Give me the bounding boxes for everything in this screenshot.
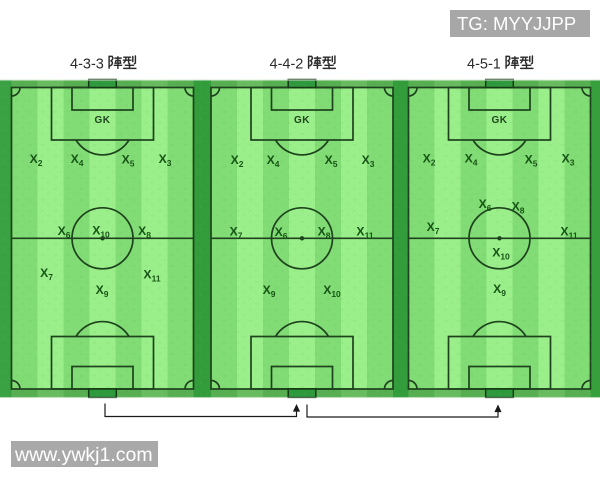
svg-text:4-4-2: 4-4-2 xyxy=(270,57,304,73)
svg-text:4-5-1: 4-5-1 xyxy=(467,57,501,73)
svg-text:TG: MYYJJPP: TG: MYYJJPP xyxy=(457,13,576,34)
svg-text:www.ywkj1.com: www.ywkj1.com xyxy=(14,444,153,466)
svg-text:4-3-3: 4-3-3 xyxy=(70,57,104,73)
